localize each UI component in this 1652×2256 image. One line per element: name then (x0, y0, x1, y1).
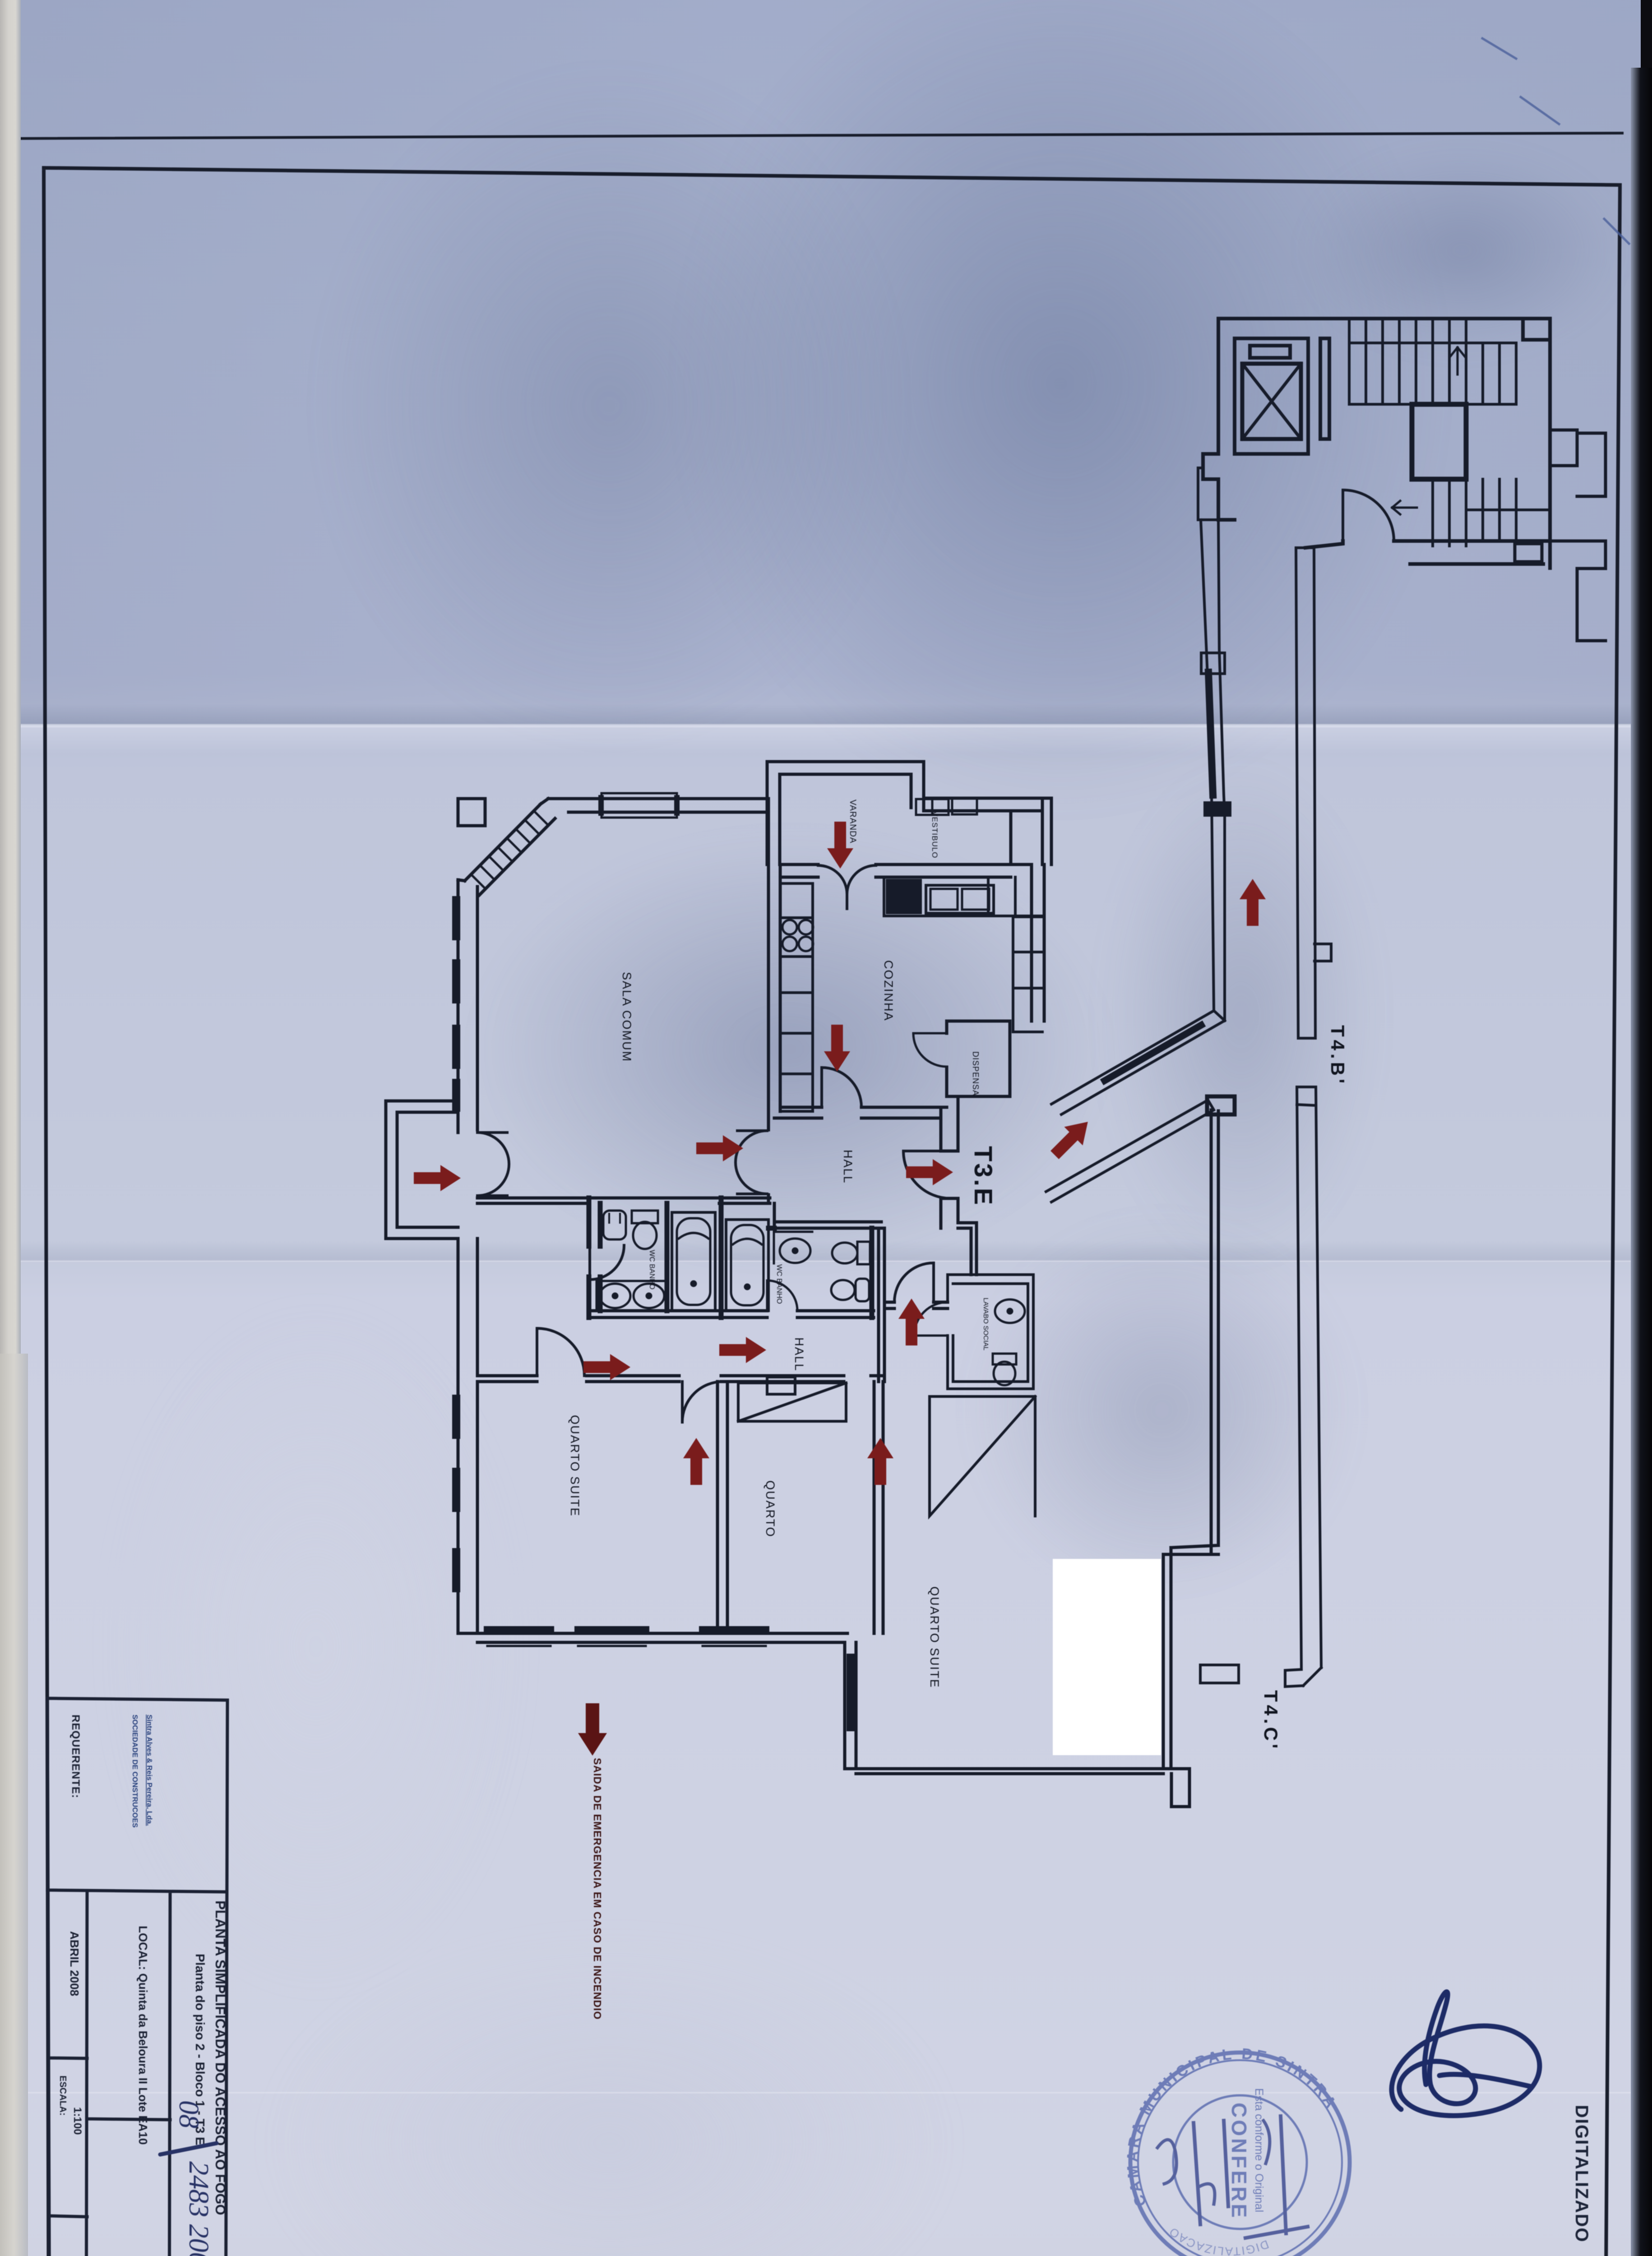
svg-text:DISPENSA: DISPENSA (971, 1051, 980, 1096)
svg-text:T4.B': T4.B' (1327, 1025, 1348, 1086)
svg-text:WC BANHO: WC BANHO (775, 1264, 783, 1304)
svg-text:QUARTO: QUARTO (764, 1480, 777, 1538)
svg-text:SOCIEDADE DE CONSTRUCOES: SOCIEDADE DE CONSTRUCOES (131, 1715, 139, 1828)
svg-text:CONFERE: CONFERE (1227, 2103, 1251, 2220)
svg-text:QUARTO SUITE: QUARTO SUITE (568, 1415, 582, 1517)
svg-text:HALL: HALL (792, 1337, 806, 1372)
svg-text:ESCALA:: ESCALA: (58, 2076, 68, 2116)
svg-text:LAVABO SOCIAL: LAVABO SOCIAL (982, 1298, 990, 1350)
svg-text:T3.E: T3.E (969, 1146, 998, 1207)
svg-text:1:100: 1:100 (71, 2107, 83, 2135)
svg-text:08: 08 (173, 2100, 204, 2128)
svg-text:ABRIL 2008: ABRIL 2008 (68, 1931, 81, 1996)
svg-text:QUARTO SUITE: QUARTO SUITE (928, 1586, 941, 1688)
svg-text:LOCAL: Quinta da Beloura II: LOCAL: Quinta da Beloura II Lote EA10 (136, 1926, 150, 2145)
svg-text:WC BANHO: WC BANHO (648, 1250, 656, 1290)
svg-text:VARANDA: VARANDA (848, 800, 857, 843)
svg-text:Esta conforme o Original: Esta conforme o Original (1253, 2088, 1265, 2212)
svg-text:DIGITALIZACAO: DIGITALIZACAO (1166, 2224, 1271, 2256)
svg-text:SAIDA DE EMERGENCIA EM CASO DE: SAIDA DE EMERGENCIA EM CASO DE INCENDIO (592, 1758, 603, 2020)
svg-text:2483 2001: 2483 2001 (183, 2161, 214, 2256)
svg-text:VESTIBULO: VESTIBULO (930, 811, 939, 858)
svg-text:T4.C': T4.C' (1260, 1690, 1282, 1752)
svg-text:REQUERENTE:: REQUERENTE: (69, 1715, 82, 1798)
svg-text:SALA COMUM: SALA COMUM (620, 972, 634, 1062)
svg-text:PLANTA SIMPLIFICADA DO ACESSO: PLANTA SIMPLIFICADA DO ACESSO AO FOGO (213, 1900, 228, 2215)
svg-text:Sintra Alves & Reis Pereira, L: Sintra Alves & Reis Pereira, Lda. (145, 1715, 153, 1826)
svg-text:DIGITALIZADO: DIGITALIZADO (1572, 2105, 1592, 2242)
svg-text:HALL: HALL (841, 1150, 855, 1184)
svg-text:COZINHA: COZINHA (882, 960, 895, 1022)
